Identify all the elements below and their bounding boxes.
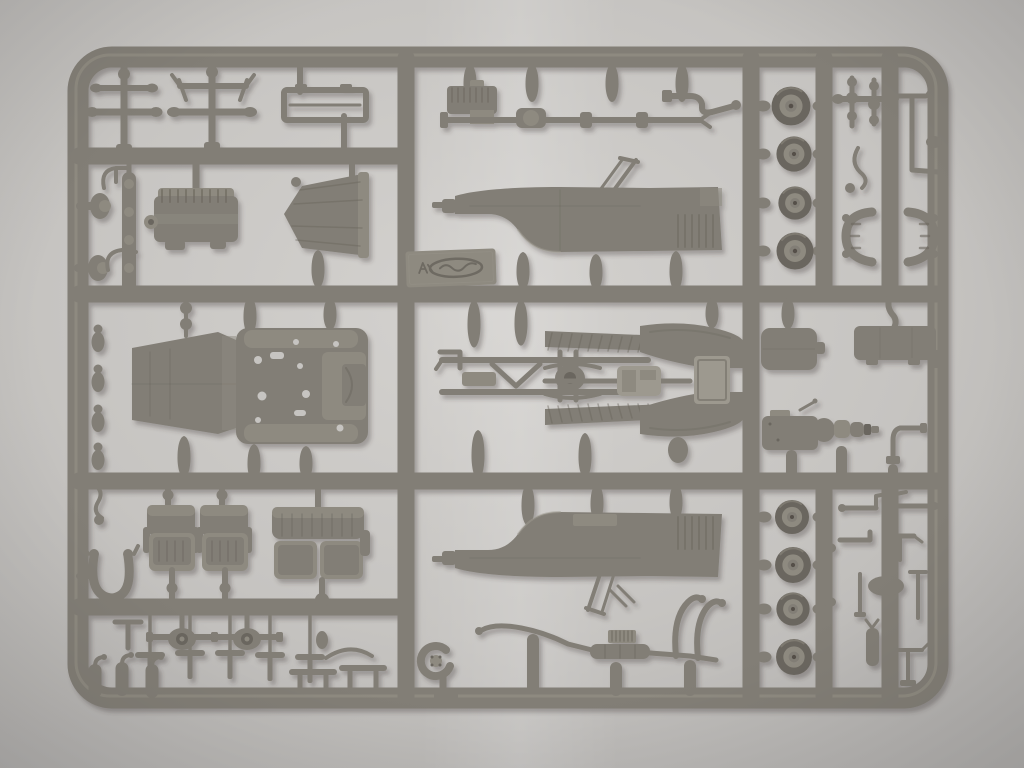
sprue-photo: Sprue frame and runners Axle unit with k… <box>0 0 1024 768</box>
vignette <box>0 0 1024 768</box>
photo-stage: Sprue frame and runners Axle unit with k… <box>0 0 1024 768</box>
